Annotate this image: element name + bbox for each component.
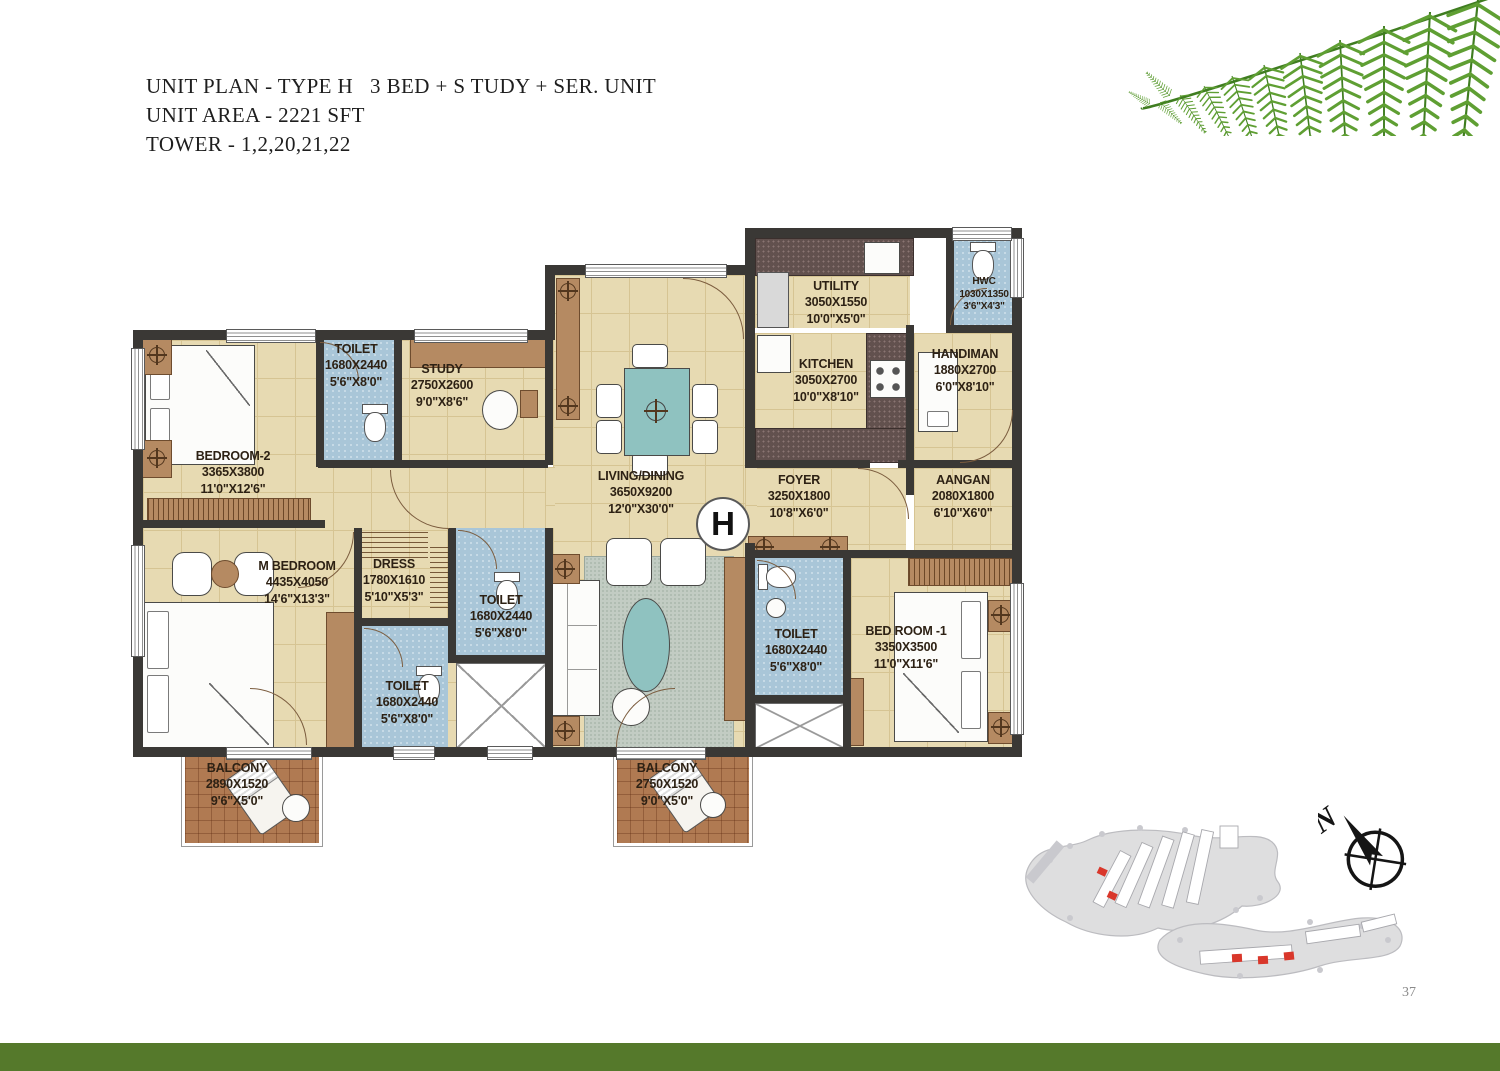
room-dims-ft: 6'10"X6'0" [932, 505, 994, 521]
utility-sink-icon [757, 272, 789, 328]
stove-icon [870, 360, 906, 398]
room-name: BEDROOM-2 [196, 448, 271, 464]
pillow-icon [147, 675, 169, 733]
balcony-door [616, 747, 706, 760]
room-name: TOILET [376, 678, 438, 694]
dining-chair-icon [692, 420, 718, 454]
wall [354, 528, 362, 757]
room-name: HWC [959, 276, 1008, 289]
room-dims-ft: 14'6"X13'3" [258, 591, 335, 607]
room-dims-mm: 3250X1800 [768, 488, 830, 504]
wall [354, 618, 452, 626]
window [414, 329, 528, 343]
pillow-icon [927, 411, 949, 427]
round-table-icon [211, 560, 239, 588]
cabinet-knob-symbol [560, 283, 576, 299]
room-dims-mm: 3050X2700 [793, 372, 859, 388]
window [1010, 238, 1024, 298]
room-name: LIVING/DINING [598, 468, 684, 484]
ceiling-fan-symbol [149, 347, 165, 363]
room-dims-mm: 3350X3500 [865, 639, 946, 655]
plan-title-line1: UNIT PLAN - TYPE H 3 BED + S TUDY + SER.… [146, 72, 656, 101]
room-label-living-dining: LIVING/DINING 3650X9200 12'0"X30'0" [598, 468, 684, 517]
room-dims-ft: 10'0"X8'10" [793, 389, 859, 405]
wall [745, 543, 755, 757]
lift-shaft-2 [755, 703, 845, 749]
wall [906, 465, 914, 495]
armchair-icon [660, 538, 706, 586]
pillow-icon [961, 601, 981, 659]
kitchen-counter-bottom [755, 428, 910, 463]
room-label-bedroom2: BEDROOM-2 3365X3800 11'0"X12'6" [196, 448, 271, 497]
room-dims-mm: 1880X2700 [932, 362, 998, 378]
room-label-balcony-mid: BALCONY 2750X1520 9'0"X5'0" [636, 760, 698, 809]
room-name: M BEDROOM [258, 558, 335, 574]
stool-icon [700, 792, 726, 818]
sofa-seam [567, 581, 568, 715]
room-dims-ft: 3'6"X4'3" [959, 301, 1008, 314]
window [585, 264, 727, 278]
room-label-hwc: HWC 1030X1350 3'6"X4'3" [959, 276, 1008, 314]
ceiling-fan-symbol [557, 561, 573, 577]
north-compass-icon: N [1318, 790, 1428, 905]
window [131, 545, 145, 657]
window [131, 348, 145, 450]
window [1010, 583, 1024, 735]
room-dims-ft: 5'6"X8'0" [376, 711, 438, 727]
laptop-icon [520, 390, 538, 418]
blanket-fold [206, 350, 250, 406]
room-dims-ft: 9'6"X5'0" [206, 793, 268, 809]
wall [745, 275, 755, 465]
wall [133, 520, 325, 528]
room-dims-ft: 5'6"X8'0" [325, 374, 387, 390]
sofa-icon [552, 580, 600, 716]
room-label-toilet-right: TOILET 1680X2440 5'6"X8'0" [765, 626, 827, 675]
room-label-foyer: FOYER 3250X1800 10'8"X6'0" [768, 472, 830, 521]
cabinet-knob-symbol [560, 398, 576, 414]
room-label-aangan: AANGAN 2080X1800 6'10"X6'0" [932, 472, 994, 521]
wall [545, 528, 553, 757]
wall [906, 325, 914, 465]
wall [545, 265, 555, 340]
sofa-seam [567, 669, 597, 670]
plan-title-block: UNIT PLAN - TYPE H 3 BED + S TUDY + SER.… [146, 72, 656, 159]
wall [745, 228, 755, 278]
stool-icon [282, 794, 310, 822]
unit-type-letter: H [711, 505, 735, 543]
wall [448, 655, 553, 663]
room-label-dress: DRESS 1780X1610 5'10"X5'3" [363, 556, 425, 605]
room-dims-ft: 5'6"X8'0" [470, 625, 532, 641]
room-dims-mm: 1680X2440 [470, 608, 532, 624]
room-label-kitchen: KITCHEN 3050X2700 10'0"X8'10" [793, 356, 859, 405]
room-dims-mm: 1680X2440 [325, 357, 387, 373]
wash-basin-icon [766, 598, 786, 618]
room-dims-mm: 2750X1520 [636, 776, 698, 792]
room-name: UTILITY [805, 278, 867, 294]
room-label-m-bedroom: M BEDROOM 4435X4050 14'6"X13'3" [258, 558, 335, 607]
dining-chair-icon [596, 384, 622, 418]
room-name: TOILET [765, 626, 827, 642]
armchair-icon [606, 538, 652, 586]
window [952, 227, 1012, 241]
room-dims-ft: 5'6"X8'0" [765, 659, 827, 675]
wall [745, 695, 845, 703]
ceiling-fan-symbol [993, 719, 1009, 735]
room-dims-ft: 12'0"X30'0" [598, 501, 684, 517]
room-name: TOILET [470, 592, 532, 608]
dress-shelf-icon [362, 532, 428, 558]
ceiling-fan-symbol [557, 723, 573, 739]
room-dims-mm: 1680X2440 [376, 694, 438, 710]
room-label-balcony-left: BALCONY 2890X1520 9'6"X5'0" [206, 760, 268, 809]
coffee-table-icon [622, 598, 670, 692]
wardrobe-icon-bedroom1 [908, 558, 1014, 586]
dining-table-center-symbol [646, 401, 666, 421]
lounge-chair-icon [172, 552, 212, 596]
room-dims-mm: 3050X1550 [805, 294, 867, 310]
room-dims-mm: 4435X4050 [258, 574, 335, 590]
wall [898, 460, 1016, 468]
dining-chair-icon [596, 420, 622, 454]
pillow-icon [147, 611, 169, 669]
room-dims-mm: 3365X3800 [196, 464, 271, 480]
room-label-utility: UTILITY 3050X1550 10'0"X5'0" [805, 278, 867, 327]
floor-doorway-study [545, 467, 555, 528]
unit-type-marker: H [696, 497, 750, 551]
room-dims-mm: 2080X1800 [932, 488, 994, 504]
room-dims-mm: 2750X2600 [411, 377, 473, 393]
dining-chair-icon [692, 384, 718, 418]
room-label-bedroom1: BED ROOM -1 3350X3500 11'0"X11'6" [865, 623, 946, 672]
room-dims-mm: 3650X9200 [598, 484, 684, 500]
svg-text:N: N [1318, 800, 1344, 841]
room-dims-ft: 6'0"X8'10" [932, 379, 998, 395]
vent-window [393, 746, 435, 760]
lift-shaft-1 [456, 663, 547, 749]
room-label-toilet-mid: TOILET 1680X2440 5'6"X8'0" [470, 592, 532, 641]
wall [448, 528, 456, 659]
room-name: HANDIMAN [932, 346, 998, 362]
wall [843, 550, 851, 757]
wall [745, 550, 851, 558]
dining-chair-icon [632, 344, 668, 368]
room-name: FOYER [768, 472, 830, 488]
study-chair-icon [482, 390, 518, 430]
room-name: BALCONY [206, 760, 268, 776]
room-name: KITCHEN [793, 356, 859, 372]
room-label-toilet-lower: TOILET 1680X2440 5'6"X8'0" [376, 678, 438, 727]
ceiling-fan-symbol [149, 450, 165, 466]
window [226, 329, 316, 343]
room-dims-ft: 11'0"X12'6" [196, 481, 271, 497]
room-dims-ft: 9'0"X8'6" [411, 394, 473, 410]
room-dims-mm: 2890X1520 [206, 776, 268, 792]
page: UNIT PLAN - TYPE H 3 BED + S TUDY + SER.… [0, 0, 1500, 1071]
room-dims-ft: 5'10"X5'3" [363, 589, 425, 605]
room-name: BED ROOM -1 [865, 623, 946, 639]
wall [545, 330, 553, 465]
room-dims-ft: 11'0"X11'6" [865, 656, 946, 672]
blanket-fold [903, 673, 959, 733]
room-name: DRESS [363, 556, 425, 572]
room-label-study: STUDY 2750X2600 9'0"X8'6" [411, 361, 473, 410]
room-name: TOILET [325, 341, 387, 357]
balcony-door [226, 747, 312, 760]
washing-machine-icon [864, 242, 900, 274]
dress-shelf-icon [430, 546, 448, 608]
plan-title-line3: TOWER - 1,2,20,21,22 [146, 130, 656, 159]
page-number: 37 [1402, 985, 1416, 1001]
room-name: BALCONY [636, 760, 698, 776]
pillow-icon [961, 671, 981, 729]
sofa-seam [567, 625, 597, 626]
wall [851, 550, 1016, 558]
wardrobe-icon-master [326, 612, 356, 750]
room-dims-ft: 10'0"X5'0" [805, 311, 867, 327]
room-name: STUDY [411, 361, 473, 377]
footer-green-bar [0, 1043, 1500, 1071]
room-label-toilet-top: TOILET 1680X2440 5'6"X8'0" [325, 341, 387, 390]
wall [745, 460, 870, 468]
room-dims-ft: 10'8"X6'0" [768, 505, 830, 521]
room-label-handiman: HANDIMAN 1880X2700 6'0"X8'10" [932, 346, 998, 395]
ceiling-fan-symbol [993, 607, 1009, 623]
room-dims-mm: 1780X1610 [363, 572, 425, 588]
fern-leaf-decoration [1078, 0, 1500, 136]
plan-title-line2: UNIT AREA - 2221 SFT [146, 101, 656, 130]
wc-icon [364, 412, 386, 442]
wall [318, 460, 548, 468]
room-dims-ft: 9'0"X5'0" [636, 793, 698, 809]
wall [394, 335, 402, 467]
wall [946, 325, 1016, 333]
room-name: AANGAN [932, 472, 994, 488]
room-dims-mm: 1680X2440 [765, 642, 827, 658]
vent-window [487, 746, 533, 760]
fridge-icon [757, 335, 791, 373]
room-dims-mm: 1030X1350 [959, 289, 1008, 302]
